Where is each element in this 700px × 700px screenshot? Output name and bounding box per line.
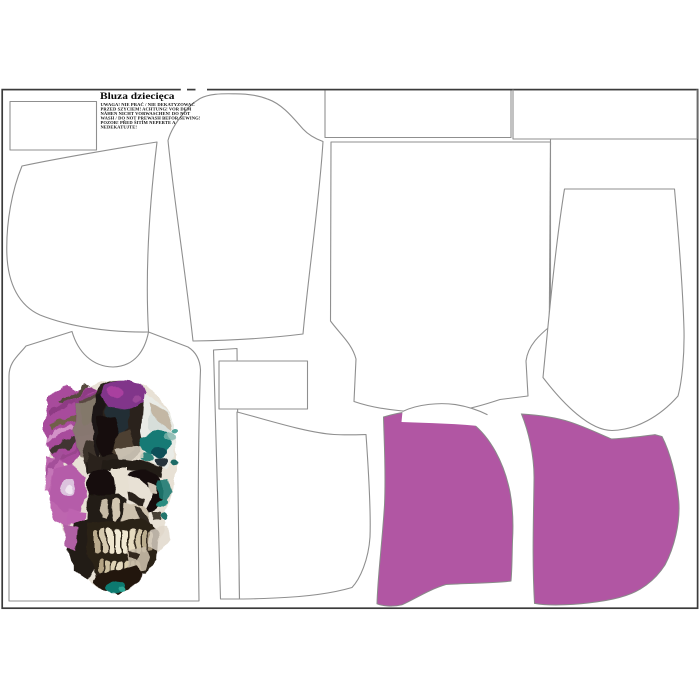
svg-text:NEDEKATUJTE!: NEDEKATUJTE!: [101, 124, 138, 129]
svg-text:Bluza dziecięca: Bluza dziecięca: [100, 91, 175, 102]
